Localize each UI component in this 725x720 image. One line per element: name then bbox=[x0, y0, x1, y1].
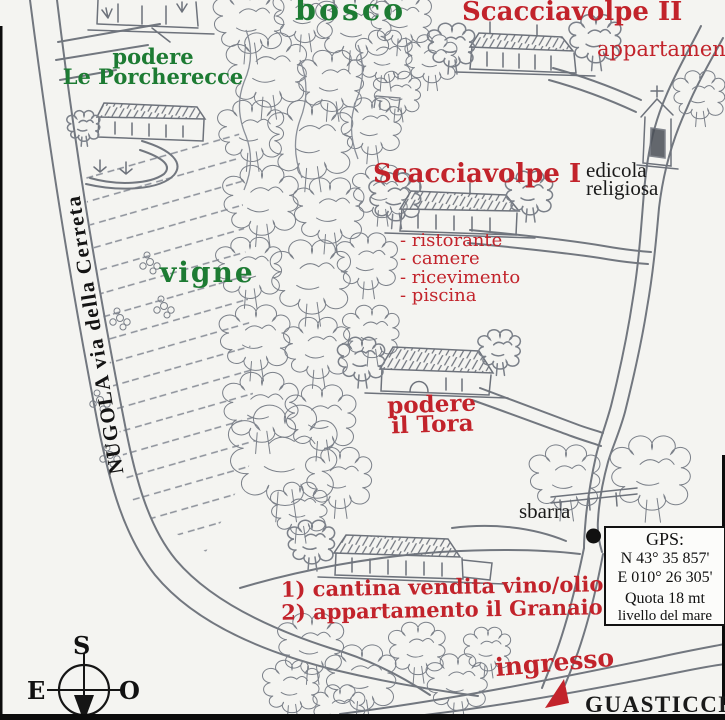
label-appartamenti: appartamenti bbox=[597, 37, 725, 61]
label-scacciavolpe-1: Scacciavolpe I bbox=[373, 159, 581, 189]
compass-label-west: O bbox=[119, 676, 140, 705]
label-edicola-line2: religiosa bbox=[586, 179, 696, 197]
label-edicola: edicola religiosa bbox=[586, 161, 696, 197]
gps-altitude-ref: livello del mare bbox=[606, 608, 724, 625]
label-sbarra: sbarra bbox=[519, 499, 570, 524]
services-list: - ristorante - camere - ricevimento - pi… bbox=[400, 232, 520, 306]
gps-title: GPS: bbox=[606, 530, 724, 549]
gps-point-dot bbox=[586, 529, 601, 544]
service-item: - piscina bbox=[400, 287, 520, 305]
label-guasticce: GUASTICCE bbox=[585, 692, 725, 718]
gps-latitude: N 43° 35 857' bbox=[606, 549, 724, 568]
compass-rose bbox=[47, 653, 121, 720]
label-bosco: bosco bbox=[295, 0, 406, 28]
hand-drawn-map: bosco Scacciavolpe II appartamenti poder… bbox=[0, 0, 725, 720]
label-porcherecce: podere Le Porcherecce bbox=[60, 47, 246, 87]
label-vigne: vigne bbox=[160, 256, 255, 289]
label-tora-line2: il Tora bbox=[386, 413, 479, 436]
label-porcherecce-line2: Le Porcherecce bbox=[60, 67, 246, 87]
gps-altitude: Quota 18 mt bbox=[606, 590, 724, 608]
label-scacciavolpe-2: Scacciavolpe II bbox=[462, 0, 682, 27]
building-tora bbox=[337, 330, 520, 398]
note-item: 2) appartamento il Granaio bbox=[281, 595, 604, 624]
gps-box: GPS: N 43° 35 857' E 010° 26 305' Quota … bbox=[604, 526, 725, 626]
edicola-chapel bbox=[637, 86, 678, 169]
building-porcherecce bbox=[67, 103, 205, 146]
notes-list: 1) cantina vendita vino/olio 2) appartam… bbox=[281, 572, 604, 624]
label-tora: podere il Tora bbox=[385, 393, 478, 436]
compass-label-south: S bbox=[73, 631, 90, 660]
gps-longitude: E 010° 26 305' bbox=[606, 568, 724, 587]
compass-label-east: E bbox=[27, 676, 45, 705]
